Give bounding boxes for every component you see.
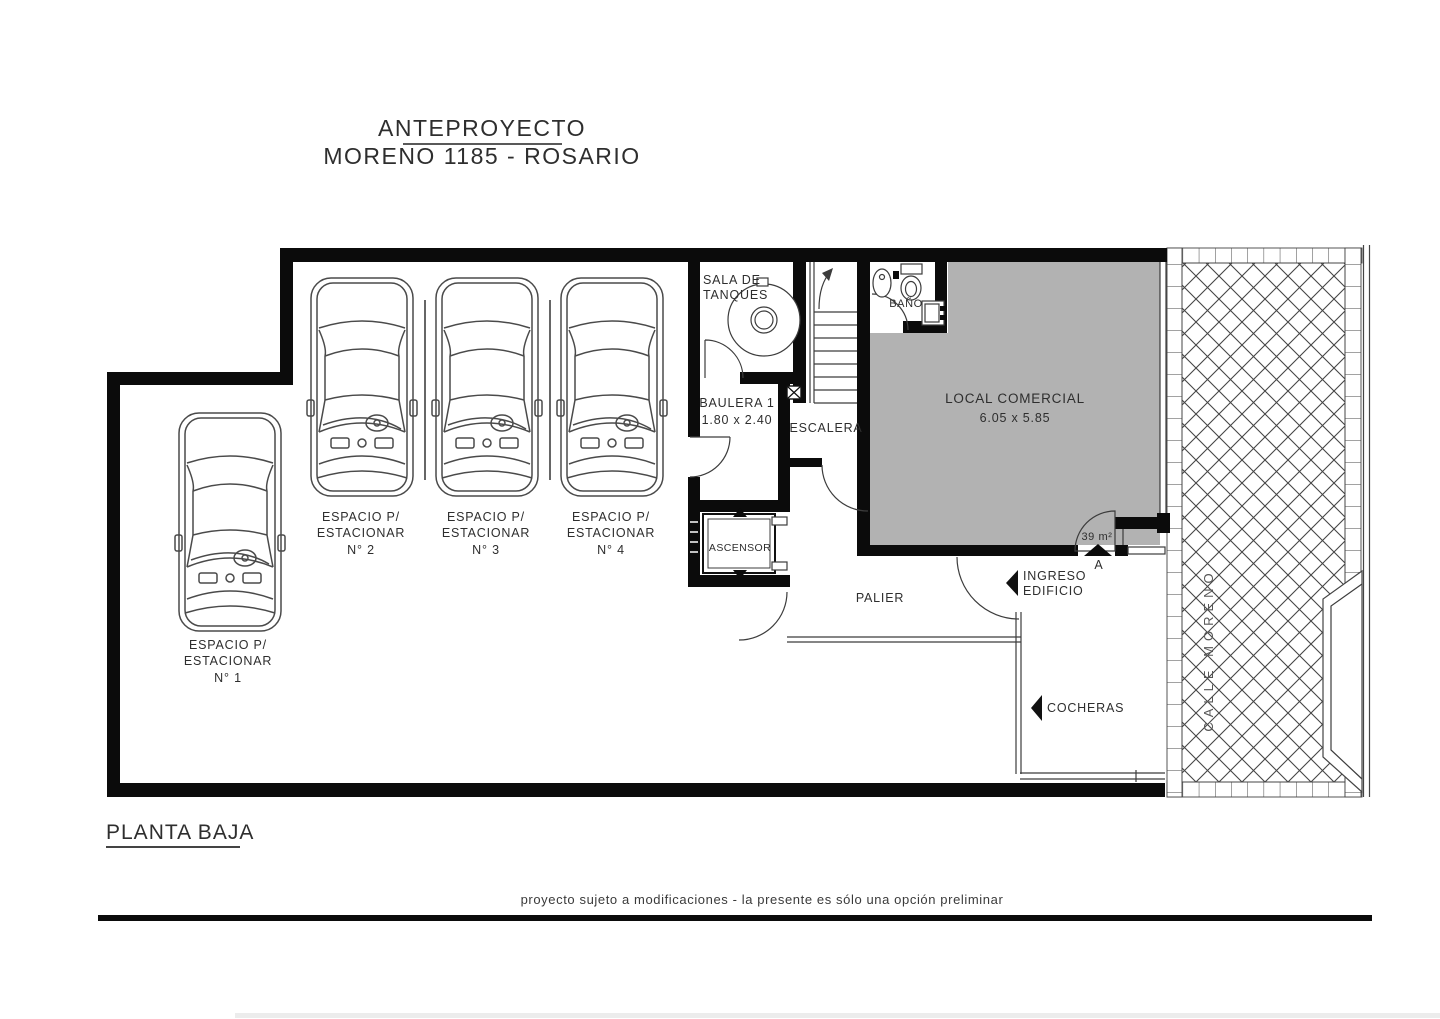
wall-baulera-right bbox=[778, 384, 790, 512]
wall-baulera-left-upper bbox=[688, 384, 700, 437]
wall-lotline-stub bbox=[1157, 513, 1170, 533]
car-top-view-icon-3 bbox=[432, 278, 542, 496]
parking-1-line2: ESTACIONAR bbox=[184, 654, 272, 668]
car-top-view-icon-2 bbox=[307, 278, 417, 496]
elevator-door-panel-top bbox=[772, 517, 787, 525]
baulera-dims-label: 1.80 x 2.40 bbox=[702, 413, 773, 427]
footer-rule bbox=[98, 915, 1372, 921]
local-area-label: 39 m² bbox=[1081, 531, 1112, 543]
stair-rail bbox=[810, 262, 814, 403]
bidet-drain bbox=[880, 275, 885, 280]
tile-row-bottom bbox=[1167, 782, 1362, 797]
wall-upper-left bbox=[280, 248, 293, 385]
parking-3-line1: ESPACIO P/ bbox=[447, 510, 525, 524]
page-edge-artifact bbox=[235, 1013, 1440, 1018]
parking-4-line1: ESPACIO P/ bbox=[572, 510, 650, 524]
driveway-apron bbox=[1323, 571, 1362, 792]
disclaimer-note: proyecto sujeto a modificaciones - la pr… bbox=[521, 892, 1004, 907]
floor-plan-drawing: ANTEPROYECTO MORENO 1185 - ROSARIO CALLE… bbox=[0, 0, 1440, 1019]
floor-label: PLANTA BAJA bbox=[106, 821, 254, 844]
wall-entry-stub bbox=[1115, 545, 1128, 556]
wall-top bbox=[280, 248, 1167, 262]
local-dims-label: 6.05 x 5.85 bbox=[980, 411, 1051, 425]
street-name-label: CALLE MORENO bbox=[1201, 568, 1216, 731]
driveway-gate-line bbox=[1020, 770, 1165, 782]
wall-local-bottom bbox=[857, 545, 1078, 556]
toilet-tank-icon bbox=[901, 264, 922, 274]
wall-left bbox=[107, 372, 120, 797]
building-entry-label-2: EDIFICIO bbox=[1023, 584, 1084, 598]
title-block: ANTEPROYECTO MORENO 1185 - ROSARIO bbox=[323, 115, 640, 169]
sidewalk-area: CALLE MORENO bbox=[1167, 245, 1370, 797]
building-entry-door-arc bbox=[957, 557, 1019, 619]
wall-local-left bbox=[857, 262, 870, 556]
parking-4-line2: ESTACIONAR bbox=[567, 526, 655, 540]
entry-vestibule-step bbox=[1128, 547, 1165, 554]
palier-label: PALIER bbox=[856, 591, 904, 605]
baulera-label: BAULERA 1 bbox=[699, 396, 774, 410]
tank-room-door-arc bbox=[705, 340, 743, 378]
elevator-label: ASCENSOR bbox=[709, 542, 771, 554]
wall-tank-room-left bbox=[688, 262, 700, 384]
baulera-door-arc bbox=[690, 437, 730, 477]
plumbing-block bbox=[893, 271, 899, 279]
wall-step bbox=[107, 372, 293, 385]
tank-room-label-1: SALA DE bbox=[703, 273, 761, 287]
sink-tap-top bbox=[940, 306, 945, 311]
car-top-view-icon-4 bbox=[557, 278, 667, 496]
elevator-lobby-door-arc bbox=[739, 592, 787, 640]
sink-tap-bottom bbox=[940, 315, 945, 320]
parking-2-line1: ESPACIO P/ bbox=[322, 510, 400, 524]
garage-entry-label: COCHERAS bbox=[1047, 701, 1124, 715]
parking-2-line2: ESTACIONAR bbox=[317, 526, 405, 540]
parked-cars bbox=[175, 278, 667, 631]
tile-row-top bbox=[1167, 248, 1362, 263]
wall-bottom bbox=[107, 783, 1165, 797]
parking-labels: ESPACIO P/ ESTACIONAR N° 1 ESPACIO P/ ES… bbox=[184, 510, 655, 685]
stair-treads bbox=[814, 312, 857, 403]
tank-room-label-2: TANQUES bbox=[703, 288, 768, 302]
wall-stair-landing bbox=[790, 458, 822, 467]
stair-label: ESCALERA bbox=[789, 421, 862, 435]
parking-2-number: N° 2 bbox=[347, 543, 375, 557]
parking-3-line2: ESTACIONAR bbox=[442, 526, 530, 540]
street-boundary-lines bbox=[1364, 245, 1370, 797]
local-door-tag: A bbox=[1094, 558, 1103, 572]
sink-basin bbox=[925, 304, 939, 322]
garage-entry-arrow-icon bbox=[1031, 695, 1042, 721]
project-address-title: MORENO 1185 - ROSARIO bbox=[323, 143, 640, 169]
stair-direction-arrow bbox=[822, 268, 833, 281]
car-top-view-icon-1 bbox=[175, 413, 285, 631]
parking-4-number: N° 4 bbox=[597, 543, 625, 557]
parking-3-number: N° 3 bbox=[472, 543, 500, 557]
palier-partition-vertical bbox=[1016, 612, 1021, 774]
floor-plan-page: ANTEPROYECTO MORENO 1185 - ROSARIO CALLE… bbox=[0, 0, 1440, 1019]
project-type-title: ANTEPROYECTO bbox=[378, 115, 586, 141]
building-entry-label-1: INGRESO bbox=[1023, 569, 1086, 583]
toilet-bowl-inner bbox=[906, 282, 917, 297]
local-entry-marker-icon bbox=[1084, 544, 1112, 556]
parking-1-line1: ESPACIO P/ bbox=[189, 638, 267, 652]
palier-partition-horizontal bbox=[787, 637, 1021, 642]
local-label: LOCAL COMERCIAL bbox=[945, 391, 1085, 406]
elevator-door-panel-bottom bbox=[772, 562, 787, 570]
building-entry-arrow-icon bbox=[1006, 570, 1018, 596]
bathroom-label: BAÑO bbox=[889, 297, 923, 310]
storefront-glass-line bbox=[1160, 262, 1166, 513]
parking-1-number: N° 1 bbox=[214, 671, 242, 685]
bidet-icon bbox=[873, 269, 891, 297]
footer-block: PLANTA BAJA proyecto sujeto a modificaci… bbox=[98, 821, 1440, 1018]
